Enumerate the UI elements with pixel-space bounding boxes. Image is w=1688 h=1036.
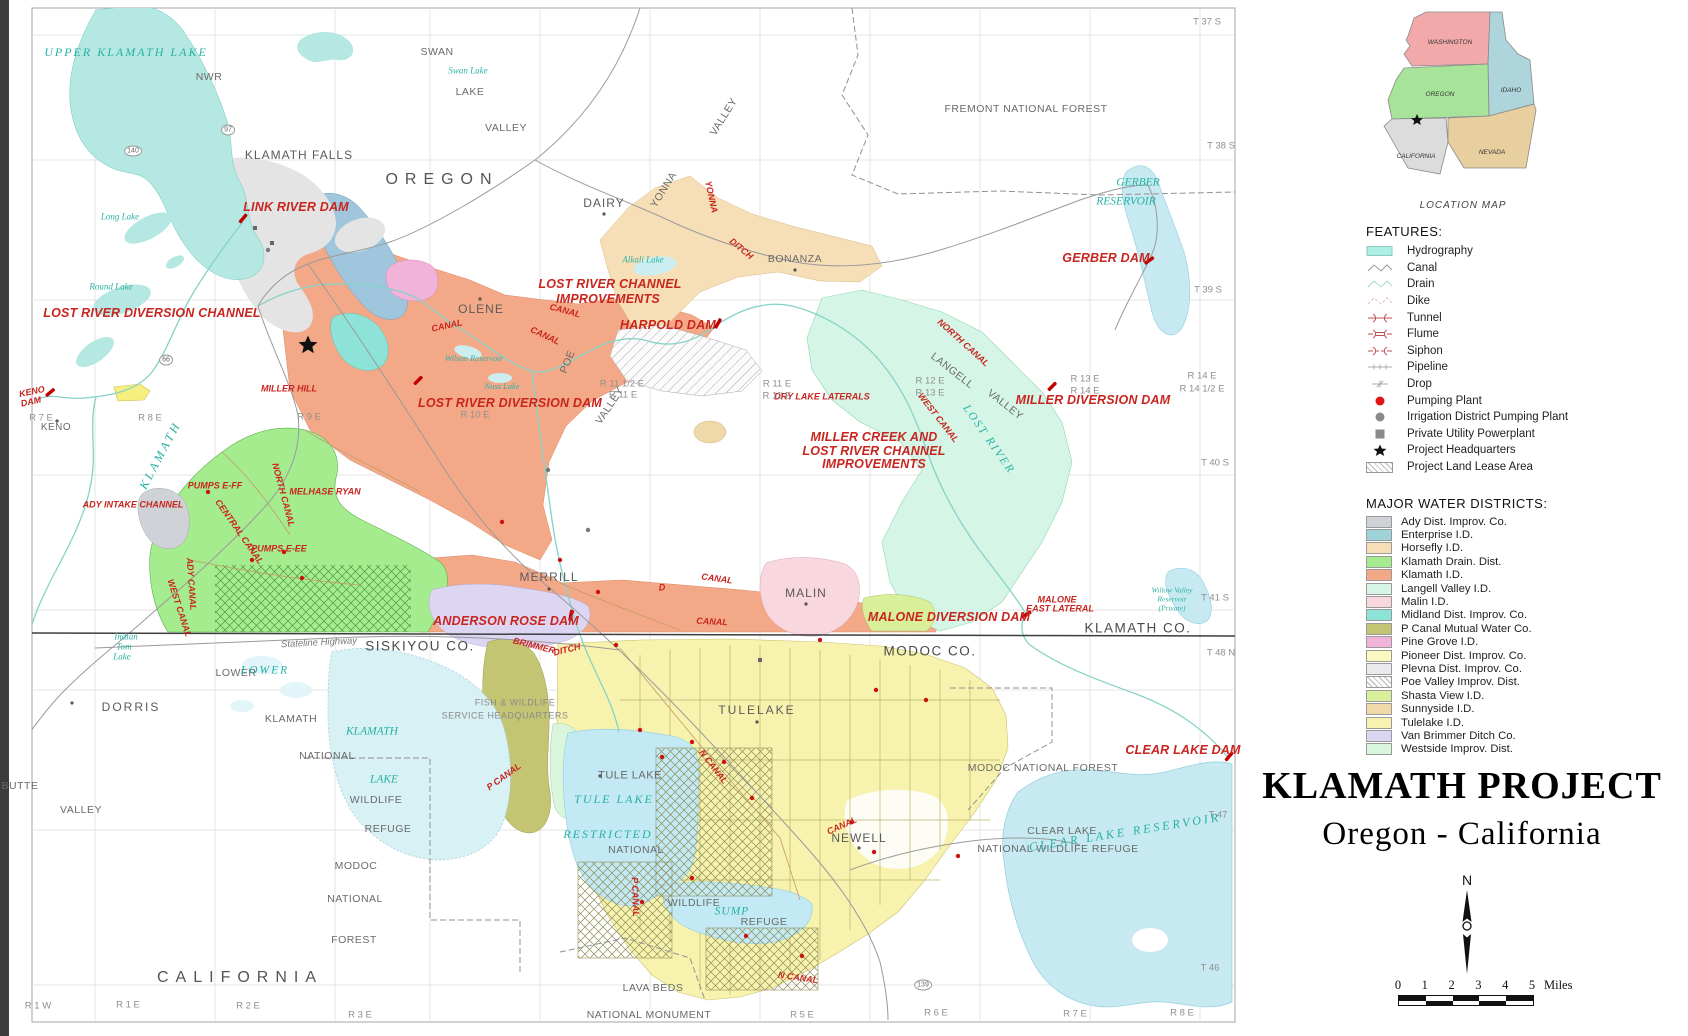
state-label: CALIFORNIA	[1396, 153, 1435, 160]
district-swatch-hatched	[1366, 676, 1392, 688]
drain-zigzag-icon	[1366, 278, 1396, 290]
state-california	[1384, 118, 1448, 174]
drain-district-lease-grid	[215, 565, 411, 632]
hydrography-swatch-icon	[1366, 245, 1396, 257]
legend-item-flume: Flume	[1366, 326, 1568, 343]
district-item: Malin I.D.	[1366, 595, 1547, 608]
district-item: Van Brimmer Ditch Co.	[1366, 729, 1547, 742]
district-item: Pine Grove I.D.	[1366, 636, 1547, 649]
legend-item-canal: Canal	[1366, 260, 1568, 277]
district-swatch	[1366, 650, 1392, 662]
scale-tick: 0	[1395, 978, 1401, 993]
scale-bar-checker	[1398, 995, 1534, 1006]
north-hub	[1463, 922, 1471, 930]
legend-item-private-powerplant: Private Utility Powerplant	[1366, 426, 1568, 443]
scale-tick: 2	[1448, 978, 1454, 993]
district-item: Shasta View I.D.	[1366, 689, 1547, 702]
district-swatch	[1366, 609, 1392, 621]
district-item: Langell Valley I.D.	[1366, 582, 1547, 595]
district-swatch	[1366, 529, 1392, 541]
title-block: KLAMATH PROJECT Oregon - California	[1257, 766, 1667, 853]
north-blade-up	[1463, 890, 1472, 922]
legend-item-siphon: Siphon	[1366, 343, 1568, 360]
pipeline-symbol-icon	[1366, 361, 1396, 373]
district-item: Sunnyside I.D.	[1366, 702, 1547, 715]
district-swatch	[1366, 730, 1392, 742]
north-blade-down	[1463, 934, 1471, 974]
legend-item-hydrography: Hydrography	[1366, 243, 1568, 260]
district-swatch	[1366, 636, 1392, 648]
district-item: Pioneer Dist. Improv. Co.	[1366, 649, 1547, 662]
district-item: Tulelake I.D.	[1366, 716, 1547, 729]
district-item: Klamath Drain. Dist.	[1366, 555, 1547, 568]
legend-item-irrigation-pp: Irrigation District Pumping Plant	[1366, 409, 1568, 426]
districts-heading: MAJOR WATER DISTRICTS:	[1366, 496, 1547, 511]
private-powerplant-icon	[1366, 428, 1396, 440]
district-item: Poe Valley Improv. Dist.	[1366, 676, 1547, 689]
canal-zigzag-icon	[1366, 262, 1396, 274]
district-item: Westside Improv. Dist.	[1366, 743, 1547, 756]
project-hq-star-icon	[1366, 444, 1396, 456]
district-swatch	[1366, 556, 1392, 568]
scale-unit: Miles	[1544, 978, 1572, 993]
irrigation-pp-icon	[1366, 411, 1396, 423]
state-label: WASHINGTON	[1428, 39, 1473, 46]
north-label: N	[1462, 872, 1472, 888]
shasta-view-id-area	[862, 595, 935, 631]
scale-tick: 4	[1502, 978, 1508, 993]
district-swatch	[1366, 743, 1392, 755]
legend-item-drain: Drain	[1366, 276, 1568, 293]
district-item: Horsefly I.D.	[1366, 542, 1547, 555]
map-canvas: LINK RIVER DAMLOST RIVER DIVERSION CHANN…	[0, 0, 1245, 1036]
legend-item-drop: Drop	[1366, 376, 1568, 393]
district-swatch	[1366, 542, 1392, 554]
district-item: P Canal Mutual Water Co.	[1366, 622, 1547, 635]
map-title: KLAMATH PROJECT	[1257, 766, 1667, 808]
scale-tick: 3	[1475, 978, 1481, 993]
state-label: IDAHO	[1501, 87, 1522, 94]
district-swatch	[1366, 690, 1392, 702]
map-subtitle: Oregon - California	[1257, 816, 1667, 853]
land-lease-hatch-icon	[1366, 462, 1396, 473]
district-swatch	[1366, 516, 1392, 528]
location-map: WASHINGTON OREGON IDAHO CALIFORNIA NEVAD…	[1368, 6, 1558, 196]
klamath-project-map-page: LINK RIVER DAMLOST RIVER DIVERSION CHANN…	[0, 0, 1688, 1036]
north-arrow: N	[1451, 872, 1483, 982]
scale-bar: 0 1 2 3 4 5 Miles	[1384, 978, 1594, 1014]
district-swatch	[1366, 596, 1392, 608]
legend-item-project-hq: Project Headquarters	[1366, 442, 1568, 459]
district-item: Midland Dist. Improv. Co.	[1366, 609, 1547, 622]
features-legend: FEATURES: Hydrography Canal Drain Dike T…	[1366, 224, 1568, 475]
district-item: Klamath I.D.	[1366, 569, 1547, 582]
district-swatch	[1366, 569, 1392, 581]
legend-item-tunnel: Tunnel	[1366, 309, 1568, 326]
legend-item-pumping-plant: Pumping Plant	[1366, 392, 1568, 409]
scale-tick: 5	[1529, 978, 1535, 993]
flume-symbol-icon	[1366, 328, 1396, 340]
state-label: OREGON	[1426, 91, 1455, 98]
district-swatch	[1366, 623, 1392, 635]
districts-legend: MAJOR WATER DISTRICTS: Ady Dist. Improv.…	[1366, 496, 1547, 756]
dike-zigzag-icon	[1366, 295, 1396, 307]
district-item: Plevna Dist. Improv. Co.	[1366, 662, 1547, 675]
district-swatch	[1366, 717, 1392, 729]
features-heading: FEATURES:	[1366, 224, 1568, 239]
district-swatch	[1366, 663, 1392, 675]
legend-item-pipeline: Pipeline	[1366, 359, 1568, 376]
state-idaho	[1488, 12, 1534, 116]
district-swatch	[1366, 703, 1392, 715]
sunnyside-id-area	[694, 421, 726, 443]
state-label: NEVADA	[1479, 149, 1505, 156]
district-item: Enterprise I.D.	[1366, 528, 1547, 541]
siphon-symbol-icon	[1366, 345, 1396, 357]
project-map-svg	[0, 0, 1245, 1036]
legend-item-land-lease: Project Land Lease Area	[1366, 459, 1568, 476]
location-map-caption: LOCATION MAP	[1368, 200, 1558, 211]
scale-tick: 1	[1422, 978, 1428, 993]
drop-symbol-icon	[1366, 378, 1396, 390]
district-item: Ady Dist. Improv. Co.	[1366, 515, 1547, 528]
tunnel-symbol-icon	[1366, 312, 1396, 324]
district-swatch	[1366, 583, 1392, 595]
legend-item-dike: Dike	[1366, 293, 1568, 310]
pumping-plant-icon	[1366, 395, 1396, 407]
